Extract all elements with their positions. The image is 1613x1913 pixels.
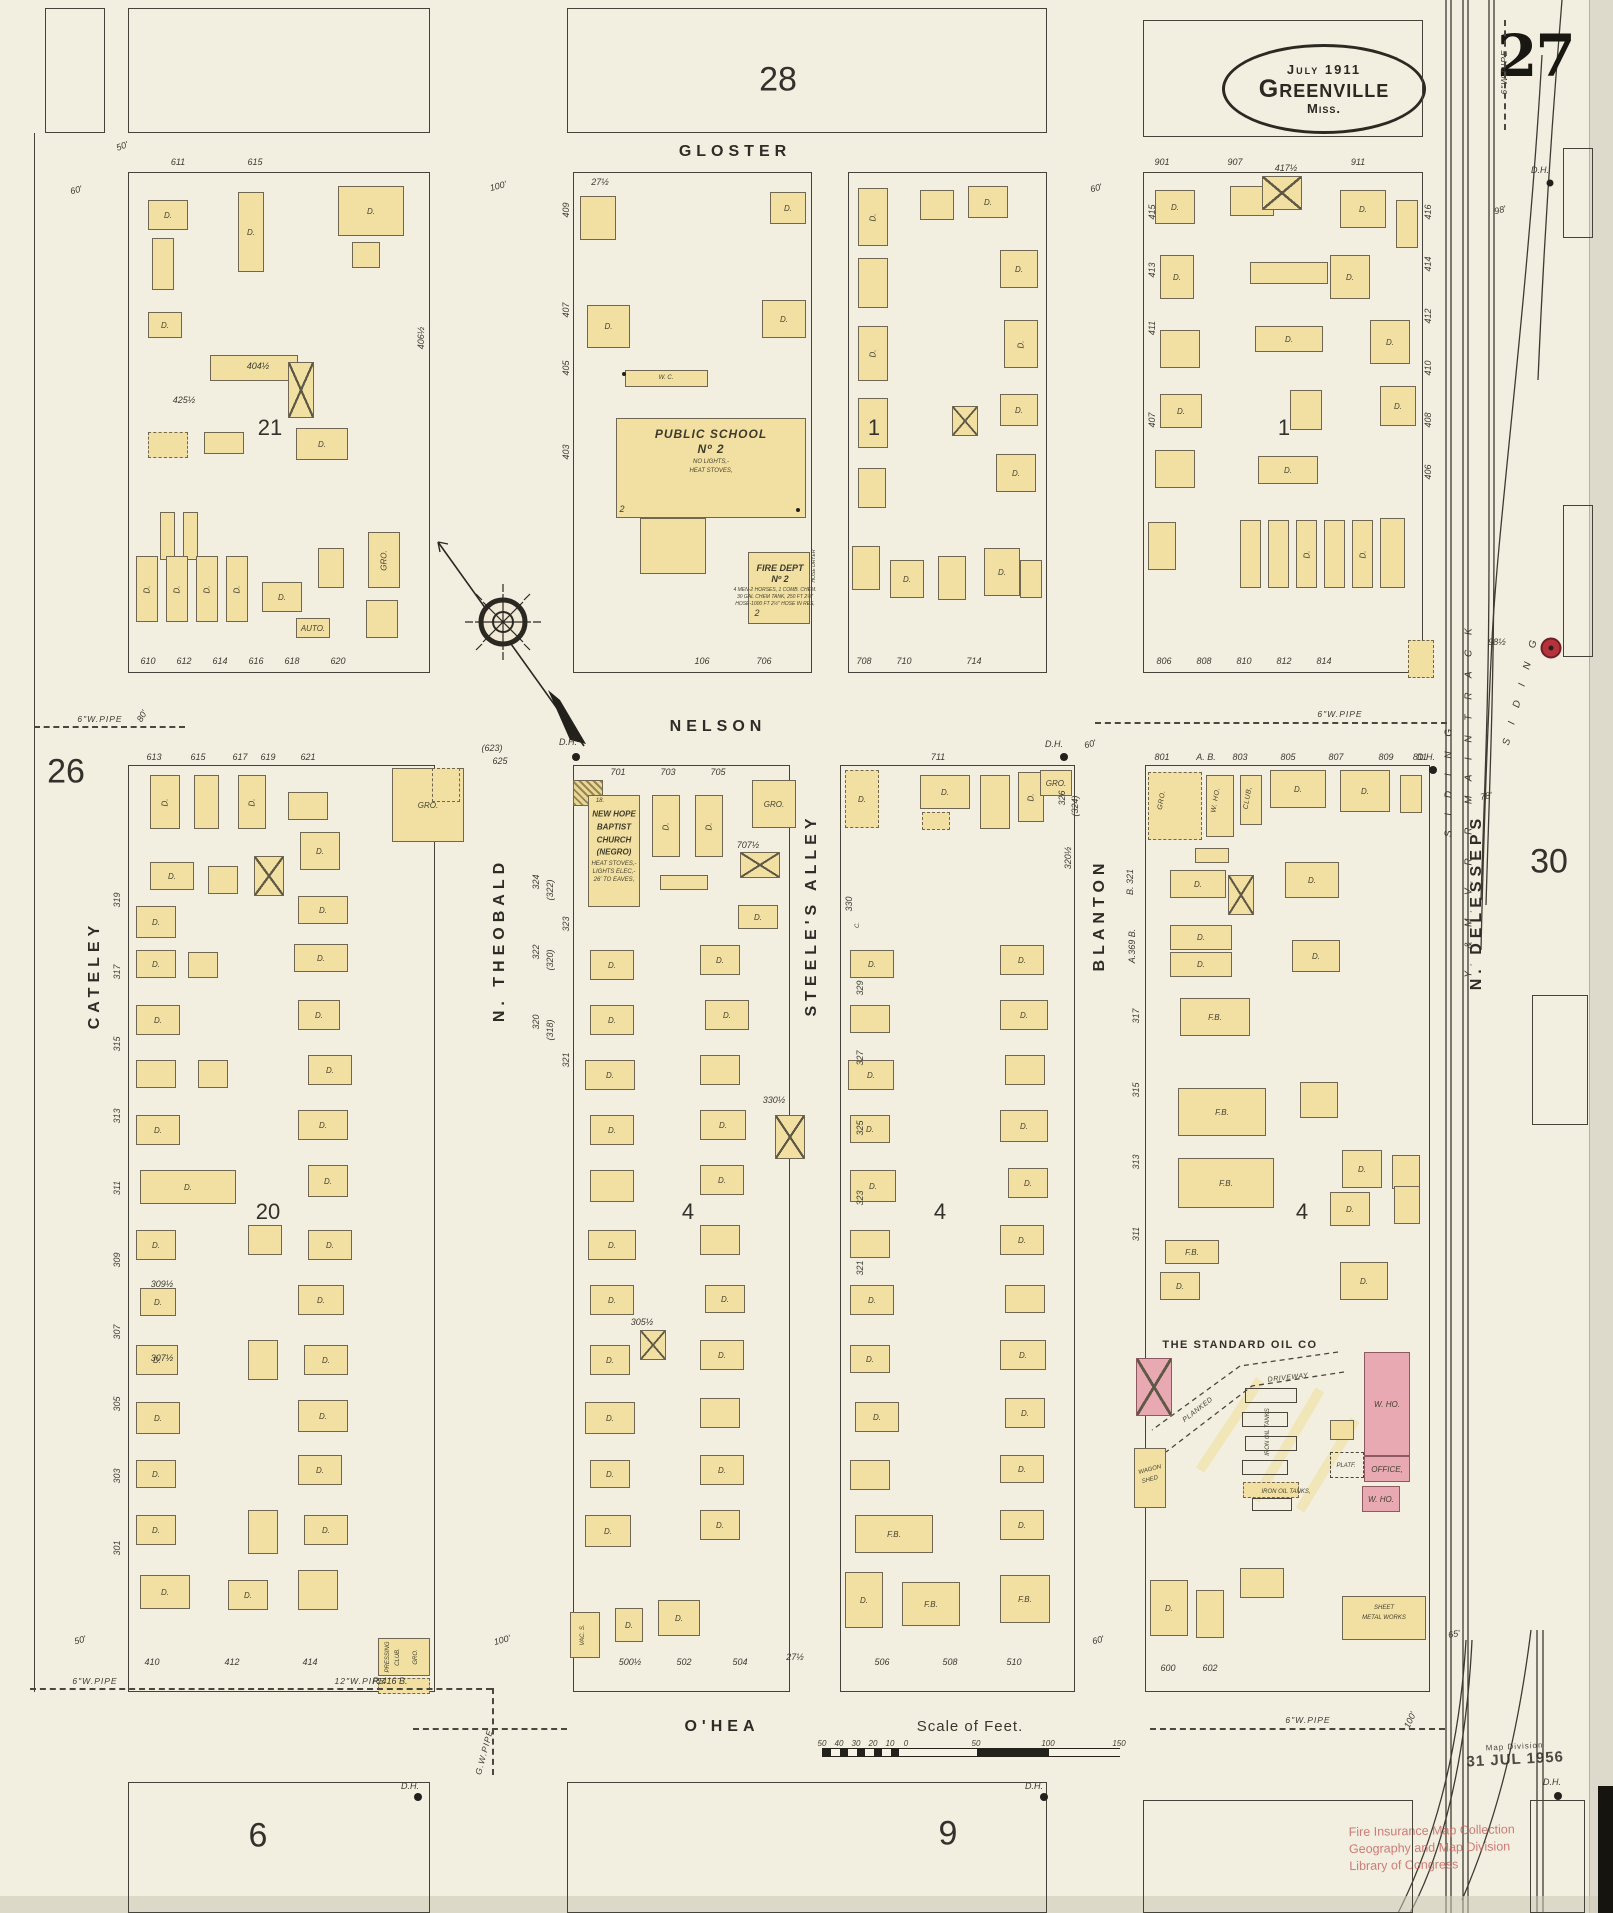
- building-label: D.: [278, 593, 286, 602]
- building: D.: [1170, 870, 1226, 898]
- building: D.: [300, 832, 340, 870]
- map-label: 6"W.PIPE: [77, 714, 122, 724]
- map-label: 706: [756, 656, 771, 666]
- map-label: 612: [176, 656, 191, 666]
- building: [740, 852, 780, 878]
- building: D.: [652, 795, 680, 857]
- map-label: 307: [112, 1324, 122, 1339]
- building: [208, 866, 238, 894]
- building-label: D.: [317, 954, 325, 963]
- map-label: 810: [1236, 656, 1251, 666]
- street-label: GLOSTER: [679, 143, 791, 161]
- building-label: D.: [705, 822, 714, 830]
- map-label: 614: [212, 656, 227, 666]
- building-label: D.: [608, 1296, 616, 1305]
- building-label: D.: [1018, 1465, 1026, 1474]
- map-label: 403: [561, 444, 571, 459]
- building: D.: [136, 556, 158, 622]
- map-label: 407: [1147, 412, 1157, 427]
- building: [1408, 640, 1434, 678]
- building-label: D.: [867, 1071, 875, 1080]
- building: D.: [700, 1340, 744, 1370]
- building: [858, 258, 888, 308]
- block-number: 4: [682, 1199, 694, 1225]
- map-label: (318): [545, 1019, 555, 1040]
- page-corner-shadow: [1598, 1786, 1613, 1913]
- map-label: D.H.: [1543, 1777, 1561, 1787]
- building: [183, 512, 198, 560]
- block-outline: [128, 8, 430, 133]
- building: [148, 432, 188, 458]
- map-label: C.: [855, 922, 861, 928]
- map-label: 327: [855, 1050, 865, 1065]
- building-label: D.: [869, 213, 878, 221]
- building: D.: [1330, 1192, 1370, 1226]
- building-label: D.: [754, 913, 762, 922]
- building: D.: [1155, 190, 1195, 224]
- map-label: IRON OIL TANKS: [1265, 1408, 1271, 1455]
- building-label: F.B.: [887, 1530, 901, 1539]
- map-label: PRESSING: [385, 1641, 391, 1672]
- building: GRO.: [752, 780, 796, 828]
- map-label: 803: [1232, 752, 1247, 762]
- map-label: 619: [260, 752, 275, 762]
- building: [152, 238, 174, 290]
- map-label: 412: [224, 1657, 239, 1667]
- map-label: THE STANDARD OIL CO: [1162, 1339, 1317, 1351]
- building: D.: [968, 186, 1008, 218]
- building-label: D.: [608, 1016, 616, 1025]
- building: [980, 775, 1010, 829]
- building: [1380, 518, 1405, 588]
- railroad-label: S I D I N G: [1444, 723, 1455, 837]
- building: [288, 792, 328, 820]
- building-label: D.: [324, 1177, 332, 1186]
- building: [188, 952, 218, 978]
- block-outline: [1143, 20, 1423, 137]
- building-label: D.: [1312, 952, 1320, 961]
- map-label: D.H.: [1045, 739, 1063, 749]
- building: D.: [590, 1115, 634, 1145]
- building-label: D.: [1171, 203, 1179, 212]
- building-label: D.: [1346, 273, 1354, 282]
- building-label: D.: [1285, 335, 1293, 344]
- building-label: D.: [1018, 1236, 1026, 1245]
- map-label: 303: [112, 1468, 122, 1483]
- map-label: 620: [330, 656, 345, 666]
- building: [700, 1225, 740, 1255]
- double-hydrant-dot: [572, 753, 580, 761]
- building-label: D.: [608, 1126, 616, 1135]
- map-label: 320: [531, 1014, 541, 1029]
- map-label: 504: [732, 1657, 747, 1667]
- building-label: F.B.: [1018, 1595, 1032, 1604]
- building-label: D.: [1017, 340, 1026, 348]
- map-label: 414: [1423, 256, 1433, 271]
- map-label: D.H.: [1417, 752, 1435, 762]
- building: D.: [308, 1165, 348, 1197]
- building-label: D.: [317, 1296, 325, 1305]
- page-edge-right: [1589, 0, 1613, 1913]
- building: D.: [705, 1000, 749, 1030]
- building-label: D.: [154, 1414, 162, 1423]
- map-label: GRO.: [413, 1649, 419, 1664]
- map-label: 309: [112, 1252, 122, 1267]
- building: [1196, 1590, 1224, 1638]
- map-label: 616: [248, 656, 263, 666]
- building-label: OFFICE,: [1371, 1465, 1403, 1474]
- map-label: PUBLIC SCHOOL: [655, 427, 767, 441]
- building-label: D.: [154, 1126, 162, 1135]
- map-label: 808: [1196, 656, 1211, 666]
- block-ref-number: 9: [939, 1815, 958, 1854]
- building-label: D.: [173, 585, 182, 593]
- map-label: 621: [300, 752, 315, 762]
- building-label: D.: [1165, 1604, 1173, 1613]
- scale-tick: 40: [835, 1739, 844, 1748]
- building: D.: [136, 1005, 180, 1035]
- map-label: 305: [112, 1396, 122, 1411]
- building: D.: [1340, 770, 1390, 812]
- scale-rule: [822, 1748, 1120, 1757]
- building-label: D.: [319, 906, 327, 915]
- building: D.: [1000, 1225, 1044, 1255]
- building-label: D.: [868, 1296, 876, 1305]
- building: GRO.: [368, 532, 400, 588]
- building: D.: [136, 1460, 176, 1488]
- building: D.: [850, 1345, 890, 1373]
- map-label: 602: [1202, 1663, 1217, 1673]
- map-label: 27½: [786, 1652, 804, 1662]
- scale-tick: 50: [818, 1739, 827, 1748]
- building: [920, 190, 954, 220]
- building: [1245, 1436, 1297, 1451]
- map-canvas: July 1911 Greenville Miss. 27 Scale of F…: [0, 0, 1613, 1913]
- block-ref-number: 26: [47, 753, 85, 792]
- map-label: 27½: [591, 177, 609, 187]
- building-label: D.: [367, 207, 375, 216]
- building: [1206, 775, 1234, 837]
- building-label: D.: [164, 211, 172, 220]
- map-label: 417½: [1275, 163, 1298, 173]
- building: D.: [845, 770, 879, 828]
- street-label: BLANTON: [1091, 859, 1109, 972]
- street-label: CATELEY: [86, 921, 104, 1029]
- map-label: A. B.: [1196, 752, 1216, 762]
- building-label: D.: [858, 795, 866, 804]
- building: D.: [587, 305, 630, 348]
- building-label: D.: [866, 1125, 874, 1134]
- building-label: D.: [984, 198, 992, 207]
- building: [850, 1230, 890, 1258]
- map-label: 305½: [631, 1317, 654, 1327]
- map-label: CHURCH: [597, 836, 632, 845]
- building: [1148, 772, 1202, 840]
- map-label: VAC. S.: [580, 1624, 586, 1645]
- building: [318, 548, 344, 588]
- scale-segment: [1049, 1749, 1120, 1756]
- building: D.: [1342, 1150, 1382, 1188]
- building-label: D.: [315, 1011, 323, 1020]
- building: D.: [150, 775, 180, 829]
- building-label: D.: [625, 1621, 633, 1630]
- building: [952, 406, 978, 436]
- building: D.: [1000, 945, 1044, 975]
- building: AUTO.: [296, 618, 330, 638]
- map-label: SHEET: [1374, 1605, 1394, 1611]
- building: D.: [136, 1515, 176, 1545]
- building: D.: [148, 200, 188, 230]
- building: D.: [1258, 456, 1318, 484]
- building-label: D.: [322, 1526, 330, 1535]
- map-label: 618: [284, 656, 299, 666]
- building: D.: [1170, 952, 1232, 977]
- map-label: 412: [1423, 308, 1433, 323]
- building: [160, 512, 175, 560]
- building-label: D.: [662, 822, 671, 830]
- building-label: D.: [780, 315, 788, 324]
- building-label: D.: [869, 1182, 877, 1191]
- building: [1250, 262, 1328, 284]
- map-label: A.369 B.: [1127, 929, 1137, 964]
- building-label: F.B.: [1208, 1013, 1222, 1022]
- double-hydrant-dot: [1554, 1792, 1562, 1800]
- building: [1240, 520, 1261, 588]
- building-label: W. HO.: [1374, 1400, 1400, 1409]
- building: D.: [1270, 770, 1326, 808]
- building: [1020, 560, 1042, 598]
- water-pipe-line: [1150, 1728, 1445, 1730]
- building-label: D.: [152, 1526, 160, 1535]
- building-label: D.: [869, 350, 878, 358]
- water-pipe-line: [492, 1688, 494, 1775]
- building-label: D.: [719, 1121, 727, 1130]
- block-outline: [1532, 995, 1588, 1125]
- building-label: D.: [1360, 1277, 1368, 1286]
- building: [700, 1398, 740, 1428]
- map-label: 30 GAL CHEM TANK, 250 FT 2½": [737, 594, 813, 600]
- building: [136, 1060, 176, 1088]
- building-label: D.: [1027, 793, 1036, 801]
- building-label: D.: [1176, 1282, 1184, 1291]
- map-label: NO LIGHTS,-: [693, 459, 729, 465]
- double-hydrant-dot: [414, 1793, 422, 1801]
- map-label: 705: [710, 767, 725, 777]
- building: D.: [658, 1600, 700, 1636]
- map-label: CLUB.: [395, 1648, 401, 1666]
- building-label: D.: [152, 960, 160, 969]
- building-label: D.: [1284, 466, 1292, 475]
- building: D.: [294, 944, 348, 972]
- building: D.: [850, 1285, 894, 1315]
- block-number: 4: [934, 1199, 946, 1225]
- building: OFFICE,: [1364, 1456, 1410, 1482]
- building: D.: [1292, 940, 1340, 972]
- building: F.B.: [1165, 1240, 1219, 1264]
- water-pipe-line: [413, 1728, 567, 1730]
- building: [1290, 390, 1322, 430]
- map-label: METAL WORKS: [1362, 1615, 1406, 1621]
- building-label: D.: [244, 1591, 252, 1600]
- building-label: D.: [868, 960, 876, 969]
- building-label: D.: [316, 1466, 324, 1475]
- double-hydrant-dot: [622, 372, 626, 376]
- building: D.: [588, 1230, 636, 1260]
- block-number: 1: [1278, 415, 1290, 441]
- building: D.: [136, 1115, 180, 1145]
- building-label: F.B.: [1219, 1179, 1233, 1188]
- building: D.: [585, 1060, 635, 1090]
- building: D.: [700, 945, 740, 975]
- map-label: 708: [856, 656, 871, 666]
- building: D.: [1000, 1455, 1044, 1483]
- building-label: F.B.: [1185, 1248, 1199, 1257]
- building-label: D.: [1394, 402, 1402, 411]
- building: D.: [1005, 1398, 1045, 1428]
- building: D.: [136, 1230, 176, 1260]
- building: D.: [850, 950, 894, 978]
- building-label: D.: [152, 918, 160, 927]
- building: [288, 362, 314, 418]
- building-label: D.: [1197, 933, 1205, 942]
- building: [1160, 330, 1200, 368]
- building-label: D.: [152, 1241, 160, 1250]
- map-label: 322: [531, 944, 541, 959]
- map-label: 711: [931, 752, 945, 762]
- map-label: 18.: [596, 798, 604, 804]
- double-hydrant-dot: [1040, 1793, 1048, 1801]
- building: [1245, 1388, 1297, 1403]
- building-label: D.: [716, 1521, 724, 1530]
- building: [858, 468, 886, 508]
- building: D.: [298, 1285, 344, 1315]
- building-label: D.: [718, 1176, 726, 1185]
- building: D.: [770, 192, 806, 224]
- building: D.: [590, 1005, 634, 1035]
- building: D.: [585, 1515, 631, 1547]
- building: D.: [298, 1400, 348, 1432]
- block-outline: [1145, 765, 1430, 1692]
- building: D.: [890, 560, 924, 598]
- building: D.: [226, 556, 248, 622]
- block-outline: [1563, 505, 1593, 657]
- map-label: 807: [1328, 752, 1343, 762]
- map-label: BAPTIST: [597, 823, 631, 832]
- building: D.: [1000, 1000, 1048, 1030]
- building: D.: [590, 1285, 634, 1315]
- building-label: D.: [1386, 338, 1394, 347]
- building: [850, 1005, 890, 1033]
- map-label: 425½: [173, 395, 196, 405]
- scale-tick: 20: [869, 1739, 878, 1748]
- map-label: 6"W.PIPE: [1317, 709, 1362, 719]
- map-label: 407: [561, 302, 571, 317]
- building-label: D.: [1020, 1011, 1028, 1020]
- building: [1148, 522, 1176, 570]
- building: W. HO.: [1362, 1486, 1400, 1512]
- map-label: 406: [1423, 464, 1433, 479]
- scale-tick: 100: [1041, 1739, 1054, 1748]
- map-label: 406½: [416, 327, 426, 350]
- building-label: D.: [1302, 550, 1311, 558]
- building: [1195, 848, 1229, 863]
- building: D.: [1004, 320, 1038, 368]
- building: [204, 432, 244, 454]
- building-label: D.: [873, 1413, 881, 1422]
- building: F.B.: [1178, 1158, 1274, 1208]
- building: D.: [984, 548, 1020, 596]
- building-label: D.: [860, 1596, 868, 1605]
- map-label: 317: [112, 964, 122, 979]
- building-label: F.B.: [924, 1600, 938, 1609]
- building-label: D.: [675, 1614, 683, 1623]
- building-label: D.: [1358, 550, 1367, 558]
- building: D.: [1008, 1168, 1048, 1198]
- building: F.B.: [855, 1515, 933, 1553]
- map-label: D.H.: [1531, 165, 1549, 175]
- scale-tick: 150: [1112, 1739, 1125, 1748]
- building-label: D.: [866, 1355, 874, 1364]
- building: D.: [304, 1515, 348, 1545]
- scale-segment: [977, 1749, 1049, 1756]
- block-outline: [567, 1782, 1047, 1913]
- building: D.: [845, 1572, 883, 1628]
- building-label: D.: [319, 1121, 327, 1130]
- building: D.: [140, 1170, 236, 1204]
- building: D.: [238, 775, 266, 829]
- water-pipe-line: [1095, 722, 1447, 724]
- date-stamp: Map Division 31 JUL 1956: [1466, 1739, 1565, 1770]
- map-label: IRON OIL TANKS,: [1261, 1489, 1310, 1495]
- building: [352, 242, 380, 268]
- map-label: 4 MEN-2 HORSES, 1 COMB. CHEM.: [733, 587, 816, 593]
- block-outline: [128, 1782, 430, 1913]
- building-label: D.: [1021, 1409, 1029, 1418]
- block-ref-number: 30: [1530, 843, 1568, 882]
- building: [1155, 450, 1195, 488]
- building-label: D.: [318, 440, 326, 449]
- building: [1240, 1568, 1284, 1598]
- map-label: 323: [561, 916, 571, 931]
- double-hydrant-dot: [1060, 753, 1068, 761]
- map-label: 600: [1160, 1663, 1175, 1673]
- map-label: 329: [855, 980, 865, 995]
- map-label: 812: [1276, 656, 1291, 666]
- building-label: D.: [1359, 205, 1367, 214]
- double-hydrant-dot: [1547, 180, 1554, 187]
- building: D.: [1330, 255, 1370, 299]
- building: [298, 1570, 338, 1610]
- block-outline: [567, 8, 1047, 133]
- map-label: 319: [112, 892, 122, 907]
- map-label: 617: [232, 752, 247, 762]
- building: [938, 556, 966, 600]
- building: D.: [700, 1455, 744, 1485]
- building: [254, 856, 284, 896]
- railroad-label: Y. & M. V. R. R. M A I N T R A C K: [1464, 622, 1475, 977]
- map-label: 805: [1280, 752, 1295, 762]
- building: D.: [1150, 1580, 1188, 1636]
- building: D.: [615, 1608, 643, 1642]
- map-label: 315: [112, 1036, 122, 1051]
- map-label: 78': [1479, 790, 1492, 802]
- map-label: 313: [1131, 1154, 1141, 1169]
- building: [640, 518, 706, 574]
- scale-tick: 10: [886, 1739, 895, 1748]
- map-label: B. 321: [1125, 869, 1135, 895]
- building: D.: [1000, 394, 1038, 426]
- building: D.: [1296, 520, 1317, 588]
